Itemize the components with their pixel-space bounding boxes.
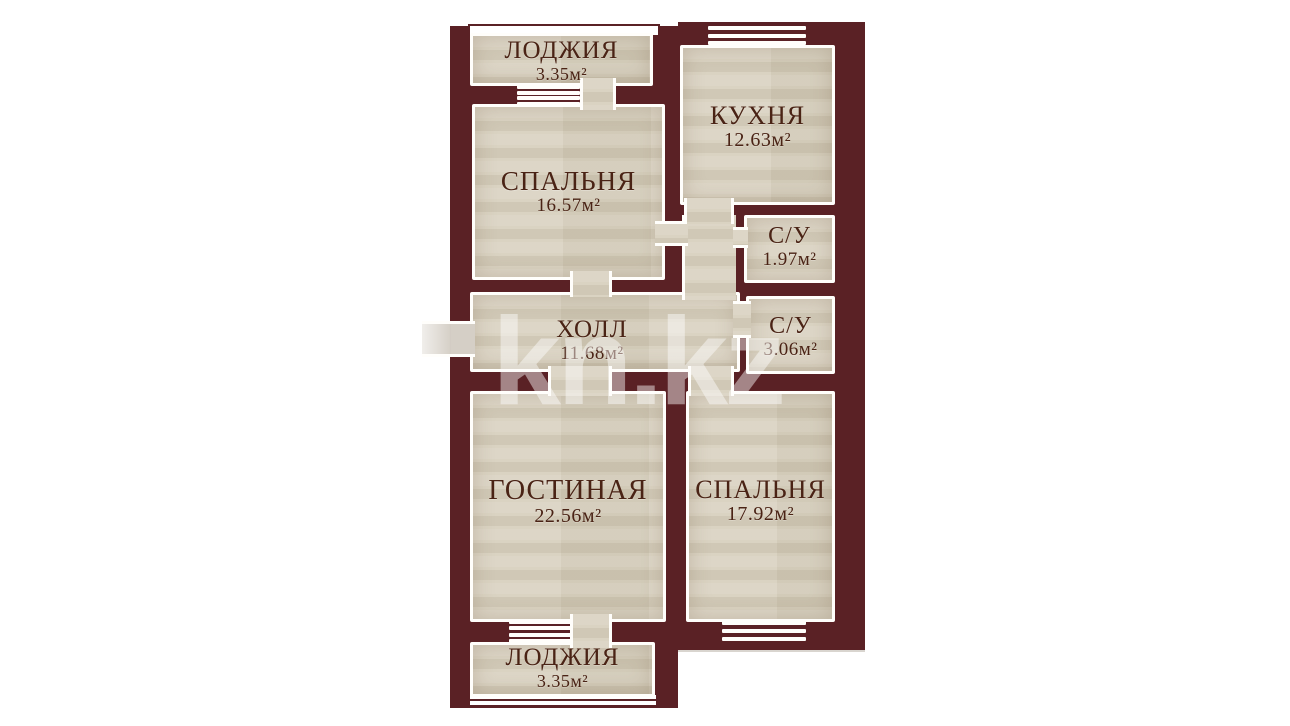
room-area: 3.06м² [746, 340, 835, 360]
room-label-bedroom-bottom: СПАЛЬНЯ 17.92м² [686, 476, 835, 525]
room-label-hall: ХОЛЛ 11.68м² [472, 317, 712, 364]
room-label-bedroom-top: СПАЛЬНЯ 16.57м² [472, 167, 665, 216]
room-label-loggia-top: ЛОДЖИЯ 3.35м² [470, 38, 653, 84]
room-name: С/У [746, 314, 835, 339]
room-label-living: ГОСТИНАЯ 22.56м² [470, 476, 666, 527]
room-area: 11.68м² [472, 344, 712, 364]
room-name: ЛОДЖИЯ [470, 38, 653, 64]
hall-corridor [682, 215, 736, 300]
bedroom-top-corridor-door [655, 221, 688, 246]
room-name: ХОЛЛ [472, 317, 712, 343]
room-area: 12.63м² [680, 130, 835, 151]
room-label-bathroom-small: С/У 1.97м² [744, 224, 835, 270]
room-label-kitchen: КУХНЯ 12.63м² [680, 102, 835, 151]
window-bar [517, 91, 580, 95]
room-area: 22.56м² [470, 506, 666, 527]
bedroom-top-window [517, 85, 580, 106]
window-bar [722, 629, 806, 633]
bedroom-bottom-window [722, 621, 806, 641]
room-area: 3.35м² [470, 65, 653, 84]
room-area: 1.97м² [744, 250, 835, 270]
window-bar [708, 34, 806, 38]
living-room-window [509, 620, 571, 643]
room-label-bathroom-large: С/У 3.06м² [746, 314, 835, 360]
loggia-bottom-balcony-door [570, 614, 612, 648]
kitchen-opening [684, 198, 734, 224]
window-bar [509, 633, 571, 637]
window-bar [517, 96, 580, 100]
entrance-opening [422, 321, 475, 357]
window-bar [722, 637, 806, 641]
bedroom-bottom-door [688, 366, 734, 396]
living-room-door [548, 366, 612, 396]
room-name: СПАЛЬНЯ [686, 476, 835, 503]
room-name: ГОСТИНАЯ [470, 476, 666, 505]
room-name: СПАЛЬНЯ [472, 167, 665, 195]
room-name: ЛОДЖИЯ [470, 645, 655, 671]
room-name: С/У [744, 224, 835, 249]
window-bar [708, 26, 806, 30]
kitchen-window [708, 26, 806, 45]
bedroom-top-door [570, 271, 612, 297]
room-name: КУХНЯ [680, 102, 835, 129]
room-area: 17.92м² [686, 504, 835, 525]
room-label-loggia-bottom: ЛОДЖИЯ 3.35м² [470, 645, 655, 691]
window-bar [509, 626, 571, 630]
room-area: 16.57м² [472, 196, 665, 216]
room-area: 3.35м² [470, 672, 655, 691]
floor-plan: ЛОДЖИЯ 3.35м² СПАЛЬНЯ 16.57м² КУХНЯ 12.6… [0, 0, 1290, 726]
